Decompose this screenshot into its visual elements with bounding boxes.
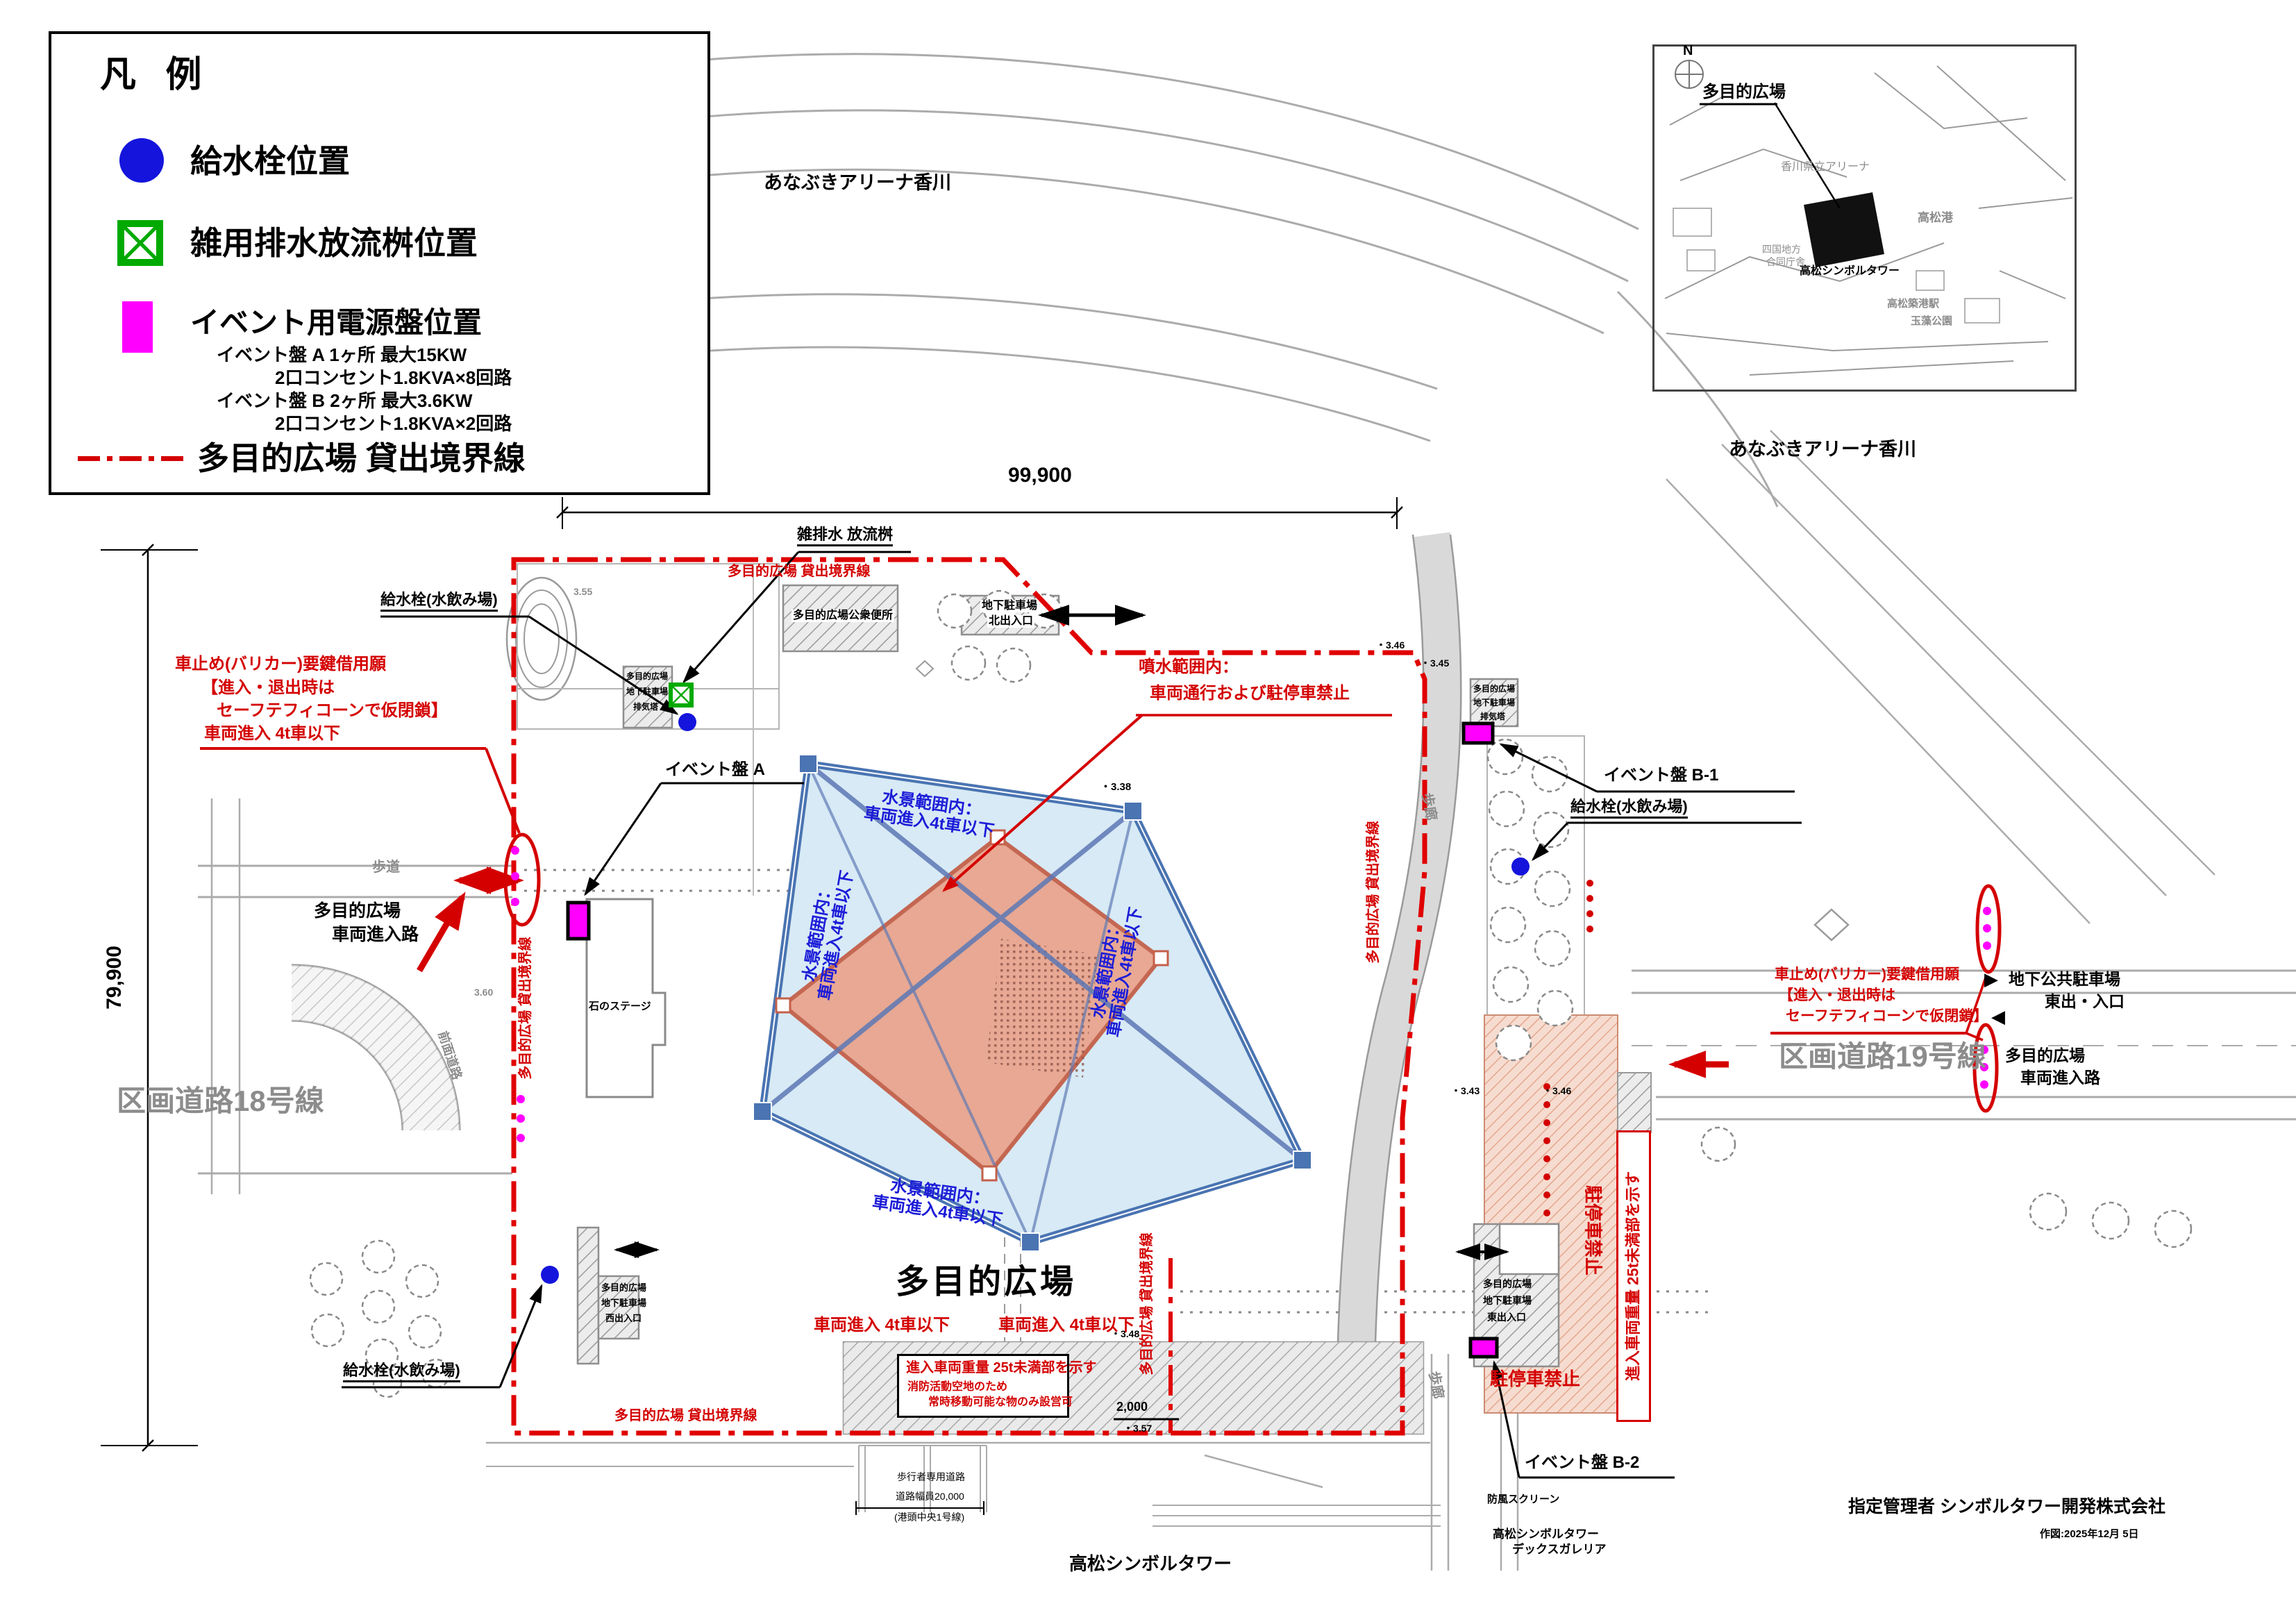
legend-panel: 凡 例 給水栓位置 雑用排水放流桝位置 イベント用電源盤位置 イベント盤 A 1… bbox=[49, 31, 710, 495]
dim-width-label: 99,900 bbox=[1008, 464, 1072, 487]
water-tap-callout-1: 給水栓(水飲み場) bbox=[380, 592, 498, 612]
elev-343: ・3.43 bbox=[1451, 1086, 1480, 1097]
event-panel-legend-icon bbox=[122, 301, 153, 353]
dim-height-label: 79,900 bbox=[103, 946, 126, 1010]
elev-338: ・3.38 bbox=[1100, 782, 1131, 794]
no-parking-vertical-label: 駐停車禁止 bbox=[1582, 1185, 1602, 1275]
barricade-note-west-1: 車止め(バリカー)要鍵借用願 bbox=[175, 655, 386, 674]
dim-gap-label: 2,000 bbox=[1116, 1400, 1148, 1414]
barricade-note-east-3: セーフテフィコーンで仮閉鎖】 bbox=[1786, 1008, 1988, 1025]
west-gate-label-2: 地下駐車場 bbox=[601, 1298, 646, 1309]
stone-stage-building bbox=[587, 899, 665, 1097]
inset-park-label: 玉藻公園 bbox=[1911, 316, 1952, 328]
road19-label: 区画道路19号線 bbox=[1779, 1040, 1986, 1073]
elev-357: ・3.57 bbox=[1123, 1423, 1152, 1434]
elev-348: ・3.48 bbox=[1111, 1329, 1139, 1340]
elev-346a: ・3.46 bbox=[1376, 640, 1405, 651]
weight-vertical-label: 進入車両重量 25t未満部を示す bbox=[1625, 1171, 1643, 1381]
inset-port-label: 高松港 bbox=[1918, 211, 1953, 224]
barricade-note-west-2: 【進入・退出時は bbox=[201, 679, 335, 698]
inset-north-label: N bbox=[1683, 43, 1693, 58]
elev-360: 3.60 bbox=[474, 987, 493, 998]
west-gate-label-1: 多目的広場 bbox=[601, 1283, 646, 1294]
walk-note-2: 道路幅員20,000 bbox=[896, 1491, 964, 1502]
deck-galleria-label-1: 高松シンボルタワー bbox=[1493, 1527, 1599, 1541]
inset-gov-label-2: 合同庁舎 bbox=[1766, 257, 1805, 268]
inset-gov-label-1: 四国地方 bbox=[1762, 244, 1801, 256]
elev-346b: ・3.46 bbox=[1543, 1086, 1571, 1097]
west-gate-label-3: 西出入口 bbox=[605, 1314, 642, 1324]
inset-station-label: 高松築港駅 bbox=[1887, 299, 1939, 310]
no-parking-bottom-label: 駐停車禁止 bbox=[1490, 1369, 1580, 1389]
inset-caption: あなぶきアリーナ香川 bbox=[1729, 439, 1916, 460]
legend-power-detail-a2: 2口コンセント1.8KVA×8回路 bbox=[275, 368, 512, 388]
water-feature bbox=[753, 755, 1312, 1251]
vent-west-label-2: 地下駐車場 bbox=[626, 687, 668, 696]
sidewalk-label: 歩道 bbox=[372, 860, 400, 875]
fountain-note-1: 噴水範囲内： bbox=[1139, 658, 1239, 677]
parking-east-arrow-right-icon: ▶ bbox=[1984, 969, 1998, 989]
windscreen-label: 防風スクリーン bbox=[1487, 1494, 1559, 1506]
parking-east-label-1: 地下公共駐車場 bbox=[2009, 971, 2120, 989]
event-panel-b2-callout: イベント盤 B-2 bbox=[1525, 1454, 1639, 1473]
vent-east-label-1: 多目的広場 bbox=[1473, 685, 1515, 694]
plaza-entry-west-1: 多目的広場 bbox=[314, 901, 401, 921]
vehicle-4t-label-1: 車両進入 4t車以下 bbox=[814, 1316, 950, 1335]
legend-power-detail-b: イベント盤 B 2ヶ所 最大3.6KW bbox=[217, 391, 472, 411]
weight-note-3: 常時移動可能な物のみ設営可 bbox=[928, 1396, 1073, 1409]
weight-vertical-box: 進入車両重量 25t未満部を示す bbox=[1616, 1130, 1651, 1422]
east-gate-label-3: 東出入口 bbox=[1487, 1312, 1526, 1323]
barricade-note-east-1: 車止め(バリカー)要鍵借用願 bbox=[1775, 966, 1959, 983]
event-panel-a-callout: イベント盤 A bbox=[665, 761, 765, 780]
boundary-label-top: 多目的広場 貸出境界線 bbox=[728, 564, 871, 579]
boundary-label-east-vertical: 多目的広場 貸出境界線 bbox=[1366, 821, 1381, 964]
drawn-date-label: 作図:2025年12月 5日 bbox=[2040, 1529, 2139, 1541]
walk-note-3: (港頭中央1号線) bbox=[894, 1512, 964, 1523]
vent-east-label-3: 排気塔 bbox=[1480, 712, 1505, 721]
plaza-entry-east-1: 多目的広場 bbox=[2005, 1047, 2085, 1065]
toilet-label: 多目的広場公衆便所 bbox=[791, 610, 894, 622]
barricade-note-west-4: 車両進入 4t車以下 bbox=[204, 725, 340, 744]
boundary-label-bottom: 多目的広場 貸出境界線 bbox=[614, 1408, 757, 1423]
inset-tower-label: 高松シンボルタワー bbox=[1800, 265, 1900, 278]
legend-drain-label: 雑用排水放流桝位置 bbox=[190, 226, 478, 262]
legend-title: 凡 例 bbox=[100, 55, 211, 95]
boundary-legend-icon bbox=[78, 456, 183, 461]
weight-note-box: 進入車両重量 25t未満部を示す 消防活動空地のため 常時移動可能な物のみ設営可 bbox=[897, 1354, 1069, 1418]
north-gate-label-2: 北出入口 bbox=[987, 615, 1034, 628]
east-gate-label-1: 多目的広場 bbox=[1483, 1279, 1532, 1290]
fountain-note-2: 車両通行および駐停車禁止 bbox=[1150, 685, 1350, 703]
drain-legend-icon bbox=[117, 220, 163, 266]
water-tap-callout-2: 給水栓(水飲み場) bbox=[1570, 798, 1688, 819]
manager-label: 指定管理者 シンボルタワー開発株式会社 bbox=[1848, 1497, 2165, 1516]
inset-arena-label: 香川県立アリーナ bbox=[1781, 161, 1870, 174]
road18-label: 区画道路18号線 bbox=[117, 1085, 324, 1117]
drain-marker bbox=[671, 685, 692, 705]
north-gate-label-1: 地下駐車場 bbox=[980, 600, 1039, 612]
deck-galleria-label-2: デックスガレリア bbox=[1512, 1543, 1607, 1556]
weight-note-1: 進入車両重量 25t未満部を示す bbox=[906, 1360, 1096, 1375]
water-tap-callout-3: 給水栓(水飲み場) bbox=[343, 1362, 460, 1382]
walkway-band bbox=[1336, 535, 1461, 1432]
event-panel-b1-callout: イベント盤 B-1 bbox=[1604, 767, 1718, 785]
boundary-label-southeast-vertical: 多目的広場 貸出境界線 bbox=[1139, 1232, 1155, 1375]
site-plan-canvas: 凡 例 給水栓位置 雑用排水放流桝位置 イベント用電源盤位置 イベント盤 A 1… bbox=[0, 0, 2296, 1624]
east-gate-label-2: 地下駐車場 bbox=[1483, 1296, 1532, 1307]
elev-355: 3.55 bbox=[573, 587, 592, 598]
barricade-note-east-2: 【進入・退出時は bbox=[1779, 987, 1895, 1004]
plaza-main-label: 多目的広場 bbox=[896, 1264, 1076, 1301]
legend-power-detail-b2: 2口コンセント1.8KVA×2回路 bbox=[275, 414, 512, 434]
drain-callout-label: 雑排水 放流桝 bbox=[797, 526, 893, 546]
walk-note-1: 歩行者専用道路 bbox=[897, 1472, 965, 1483]
vent-east-label-2: 地下駐車場 bbox=[1473, 698, 1515, 708]
vent-west-label-3: 排気塔 bbox=[633, 703, 658, 712]
elev-345: ・3.45 bbox=[1421, 658, 1449, 669]
stone-stage-label: 石のステージ bbox=[589, 1001, 651, 1013]
legend-power-label: イベント用電源盤位置 bbox=[190, 306, 482, 339]
parking-east-arrow-left-icon: ◀ bbox=[1991, 1007, 2005, 1027]
boundary-label-west-vertical: 多目的広場 貸出境界線 bbox=[518, 937, 533, 1080]
weight-note-2: 消防活動空地のため bbox=[907, 1381, 1007, 1393]
water-tap-legend-icon bbox=[119, 138, 164, 183]
plaza-entry-east-2: 車両進入路 bbox=[2020, 1069, 2100, 1087]
barricade-note-west-3: セーフテフィコーンで仮閉鎖】 bbox=[217, 702, 448, 721]
plaza-entry-west-2: 車両進入路 bbox=[332, 925, 419, 944]
vent-west-label-1: 多目的広場 bbox=[626, 672, 668, 681]
legend-water-tap-label: 給水栓位置 bbox=[190, 144, 350, 180]
inset-plaza-label: 多目的広場 bbox=[1702, 83, 1786, 102]
legend-power-detail-a: イベント盤 A 1ヶ所 最大15KW bbox=[217, 345, 467, 365]
arena-top-label: あなぶきアリーナ香川 bbox=[764, 172, 951, 193]
symbol-tower-label: 高松シンボルタワー bbox=[1069, 1554, 1232, 1574]
legend-boundary-label: 多目的広場 貸出境界線 bbox=[197, 441, 526, 477]
parking-east-label-2: 東出・入口 bbox=[2045, 993, 2125, 1011]
